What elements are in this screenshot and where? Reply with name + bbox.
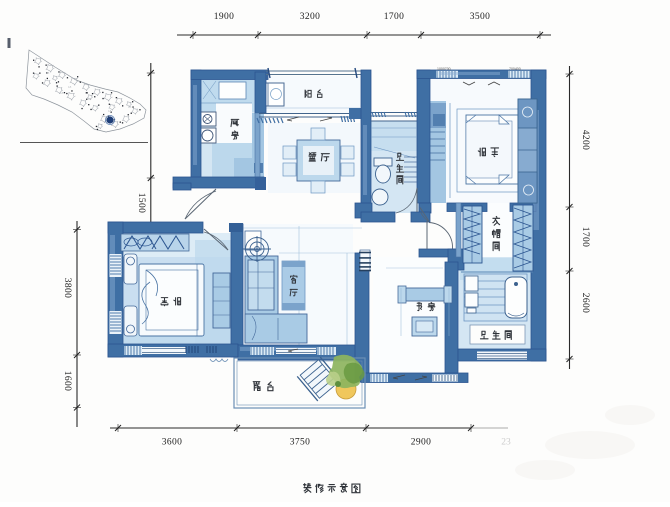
svg-text:1900: 1900 (214, 12, 235, 22)
svg-text:18: 18 (46, 71, 50, 75)
svg-text:2600: 2600 (580, 293, 590, 314)
svg-text:18: 18 (60, 91, 64, 95)
svg-text:1700: 1700 (384, 12, 405, 22)
svg-text:2900: 2900 (411, 438, 432, 448)
svg-text:23: 23 (501, 438, 511, 448)
svg-text:4200: 4200 (580, 130, 590, 151)
svg-text:18: 18 (128, 105, 132, 109)
svg-text:3500: 3500 (470, 12, 491, 22)
svg-text:3600: 3600 (162, 438, 183, 448)
svg-text:700400: 700400 (509, 67, 521, 71)
svg-text:18: 18 (88, 97, 92, 101)
svg-text:1700: 1700 (580, 227, 590, 248)
svg-text:3750: 3750 (290, 438, 311, 448)
svg-text:18: 18 (108, 109, 112, 113)
svg-text:1000700: 1000700 (437, 67, 451, 71)
svg-text:1600: 1600 (62, 371, 72, 392)
svg-text:1500: 1500 (136, 193, 146, 214)
svg-text:3800: 3800 (62, 278, 72, 299)
svg-text:18: 18 (68, 85, 72, 89)
svg-text:3200: 3200 (300, 12, 321, 22)
